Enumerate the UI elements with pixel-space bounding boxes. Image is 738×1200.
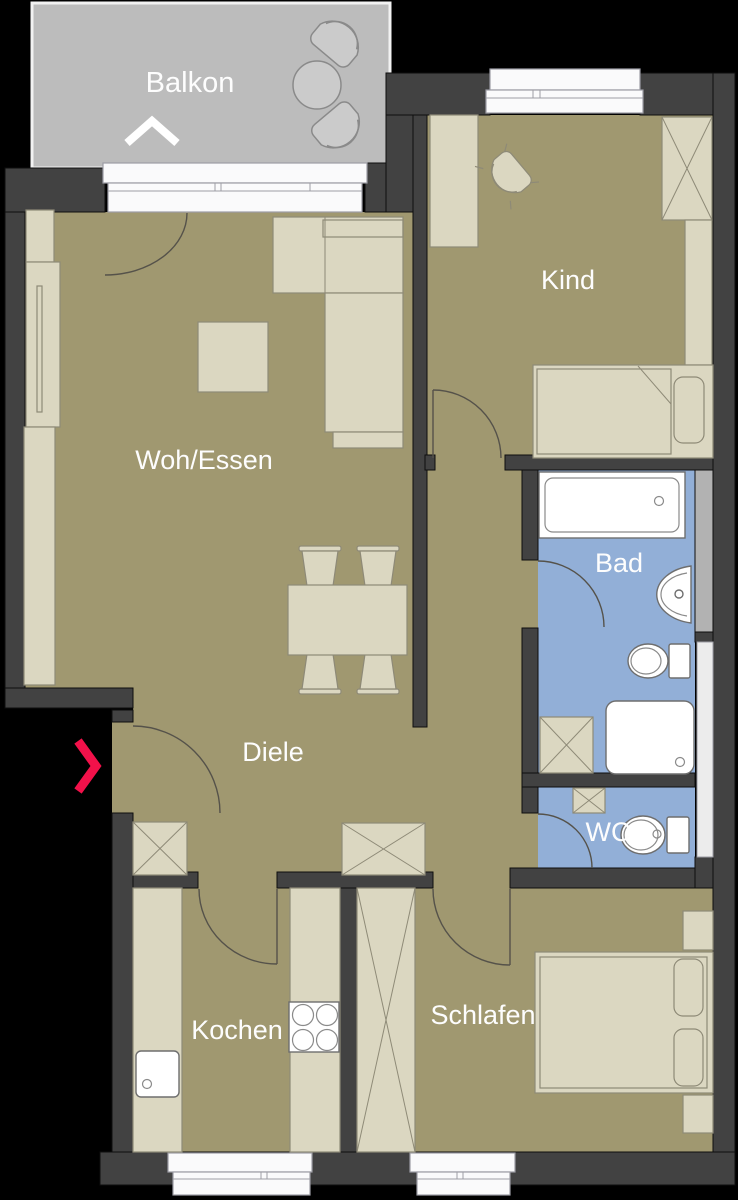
label-kochen: Kochen: [191, 1015, 283, 1045]
counter-left: [133, 888, 182, 1152]
label-schlafen: Schlafen: [430, 1000, 535, 1030]
double-bed: [535, 952, 713, 1093]
label-bad: Bad: [595, 548, 643, 578]
single-bed: [533, 365, 713, 458]
bath-shaft-box: [540, 717, 593, 773]
shelf: [685, 220, 712, 365]
nightstand: [683, 1095, 713, 1133]
nightstand: [683, 911, 713, 950]
label-balkon: Balkon: [146, 67, 235, 99]
shaft-light: [697, 642, 713, 857]
toilet: [621, 816, 689, 854]
hallway-wardrobe: [342, 823, 425, 875]
bedroom-window: [410, 1153, 515, 1195]
kind-window: [486, 69, 643, 113]
floor-plan-canvas: Balkon Woh/Essen Kind Bad WC Diele Koche…: [0, 0, 738, 1200]
shafts: [695, 470, 713, 857]
coffee-table: [198, 322, 268, 392]
bathtub: [539, 472, 685, 538]
shaft-gray: [695, 470, 713, 632]
pillow: [674, 1029, 703, 1086]
built-in-closet: [357, 888, 415, 1152]
balcony-door-window: [103, 163, 367, 212]
shower: [606, 701, 694, 774]
toilet: [628, 644, 690, 678]
wardrobe: [662, 117, 712, 220]
dining-table: [288, 585, 407, 655]
wc-shaft-box: [573, 788, 605, 813]
label-wc: WC: [586, 817, 631, 847]
label-woh-essen: Woh/Essen: [135, 445, 273, 475]
balcony-table: [293, 61, 341, 109]
sideboard: [26, 210, 54, 262]
kitchen-window: [168, 1153, 312, 1195]
pillow: [674, 959, 703, 1016]
label-kind: Kind: [541, 265, 595, 295]
desk: [430, 115, 478, 247]
tv-board: [26, 262, 60, 427]
pillow: [674, 377, 704, 443]
stove: [289, 1002, 339, 1052]
kitchen-sink: [136, 1051, 179, 1097]
shelf: [24, 427, 55, 685]
label-diele: Diele: [242, 737, 304, 767]
floor-plan: Balkon Woh/Essen Kind Bad WC Diele Koche…: [0, 0, 738, 1200]
entry-wardrobe: [133, 822, 187, 875]
